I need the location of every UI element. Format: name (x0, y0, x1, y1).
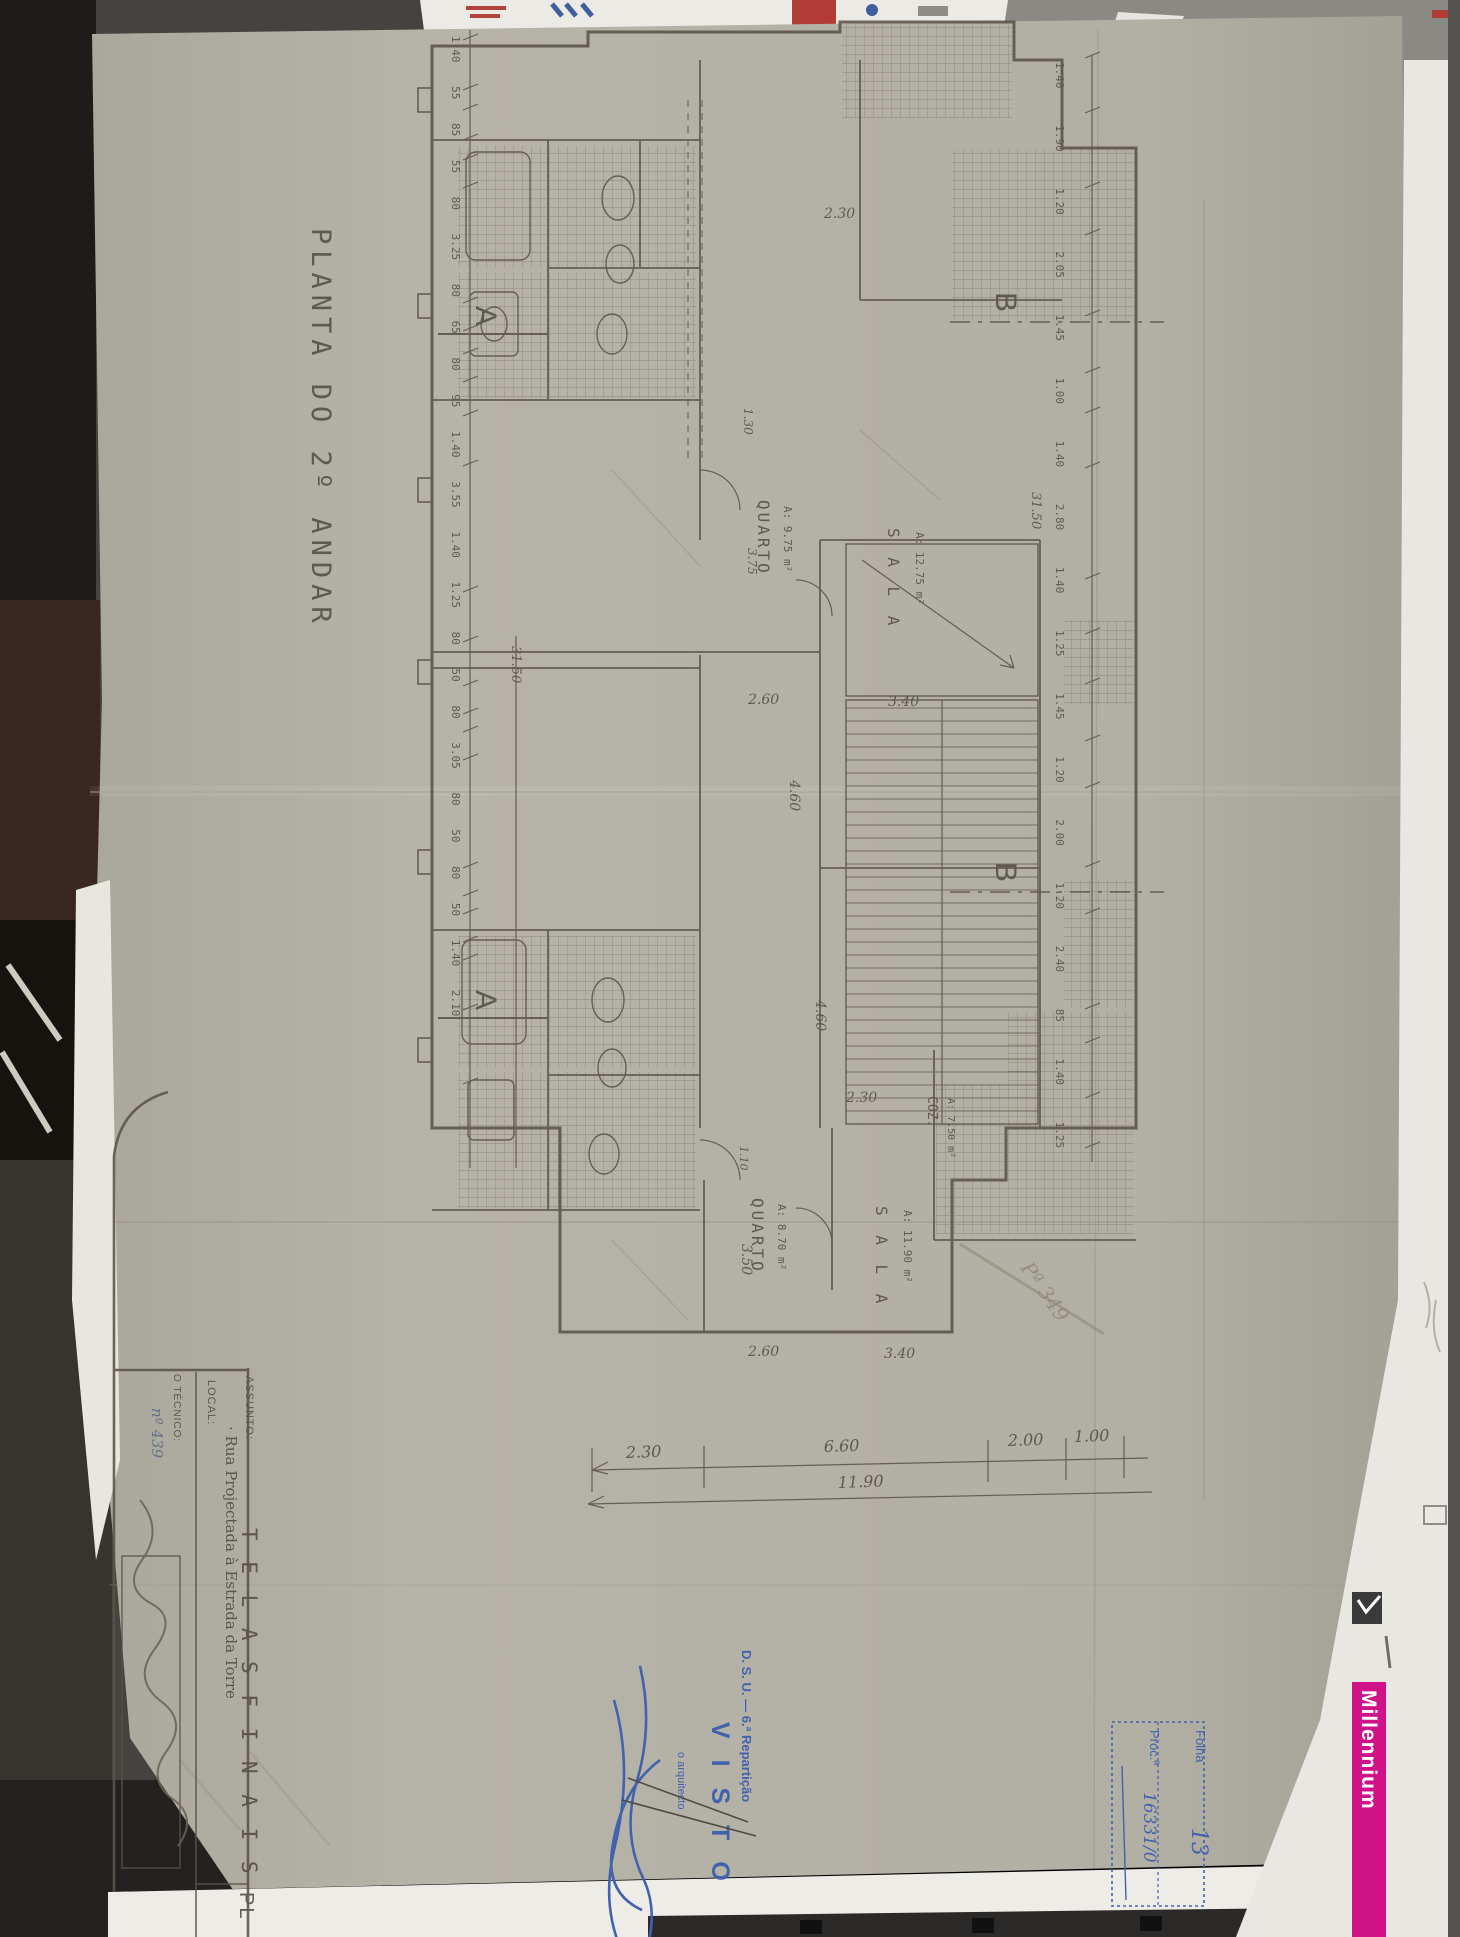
visto-dept: D. S. U. — 6.ª Repartição (739, 1650, 754, 1802)
tecnico-label: O TÉCNICO: (171, 1374, 184, 1442)
assunto-label: ASSUNTO: (243, 1376, 255, 1440)
section-b-bottom: B (989, 862, 1022, 882)
section-b-top: B (989, 292, 1022, 312)
room-coz: COZ. (924, 1096, 939, 1127)
dim-i4: 4.60 (786, 779, 802, 811)
paper-sheet: 2 (72, 16, 1460, 1937)
plan-title: PLANTA DO 2º ANDAR (305, 228, 336, 629)
room-sala-1-area: A: 12.75 m² (913, 532, 926, 605)
dim-i3: 3.40 (888, 694, 919, 710)
room-sala-1: S A L A (884, 528, 903, 630)
proc-value: 16331/0 (1139, 1792, 1159, 1863)
dim-i9: 3.50 (738, 1244, 754, 1275)
left-chain-total: 31.50 (508, 646, 523, 683)
left-chain-values: 1.40 55 85 55 80 3.25 80 65 80 95 1.40 3… (449, 36, 462, 1016)
bottom-dim-1: 2.30 (624, 1442, 661, 1462)
sheet-label: PL (235, 1892, 257, 1920)
dim-i5: 1.30 (741, 408, 755, 435)
room-sala-2: S A L A (872, 1206, 891, 1308)
bottom-dim-4: 1.00 (1073, 1426, 1109, 1446)
paper (88, 16, 1414, 1908)
blue-dot (866, 4, 878, 16)
dim-i6: 3.75 (745, 548, 759, 575)
right-chain-values: 1.40 1.90 1.20 2.05 1.45 1.00 1.40 2.80 … (1053, 62, 1066, 1148)
gray-fragment (918, 6, 948, 16)
dim-i7: 2.30 (845, 1090, 877, 1106)
section-a-bottom: A (469, 990, 502, 1010)
folha-label: Folha (1193, 1730, 1208, 1763)
fold-highlight (90, 786, 1410, 796)
bottom-dim-total: 11.90 (837, 1471, 883, 1492)
dark-left-edge (0, 0, 96, 640)
dim-i10: 2.60 (747, 1344, 779, 1360)
photo-right-border (1448, 0, 1460, 1937)
dim-i12: 1.10 (737, 1146, 750, 1171)
room-sala-2-area: A: 11.90 m² (901, 1210, 914, 1283)
dim-i1: 2.30 (823, 206, 855, 222)
brand-name: Millennium (1357, 1690, 1380, 1810)
room-quarto-1-area: A: 9.75 m² (781, 506, 794, 572)
section-a-top: A (469, 306, 502, 326)
local-label: LOCAL: (205, 1380, 217, 1425)
bottom-dim-2: 6.60 (823, 1436, 859, 1456)
dim-i8: 4.60 (812, 999, 828, 1031)
dim-i11: 3.40 (884, 1346, 915, 1362)
bottom-dim-3: 2.00 (1006, 1430, 1043, 1450)
tecnico-number: nº 439 (148, 1408, 166, 1459)
red-patch (792, 0, 836, 28)
photo-of-floor-plan: 2 Millennium PLANTA DO 2º ANDAR (0, 0, 1460, 1937)
local-value: · Rua Projectada à Estrada da Torre (222, 1426, 240, 1699)
top-right-red-fragment (1432, 10, 1448, 18)
dim-i2: 2.60 (747, 692, 779, 708)
visto-word: V I S T O (706, 1722, 734, 1888)
visto-role: o arquitecto (675, 1752, 687, 1809)
right-chain-total: 31.50 (1028, 492, 1043, 529)
proc-label: Proc.ª (1147, 1730, 1162, 1765)
room-quarto-2-area: A: 8.70 m² (775, 1204, 788, 1270)
folha-value: 13 (1186, 1828, 1211, 1856)
room-coz-area: A: 7.50 m² (945, 1098, 956, 1158)
